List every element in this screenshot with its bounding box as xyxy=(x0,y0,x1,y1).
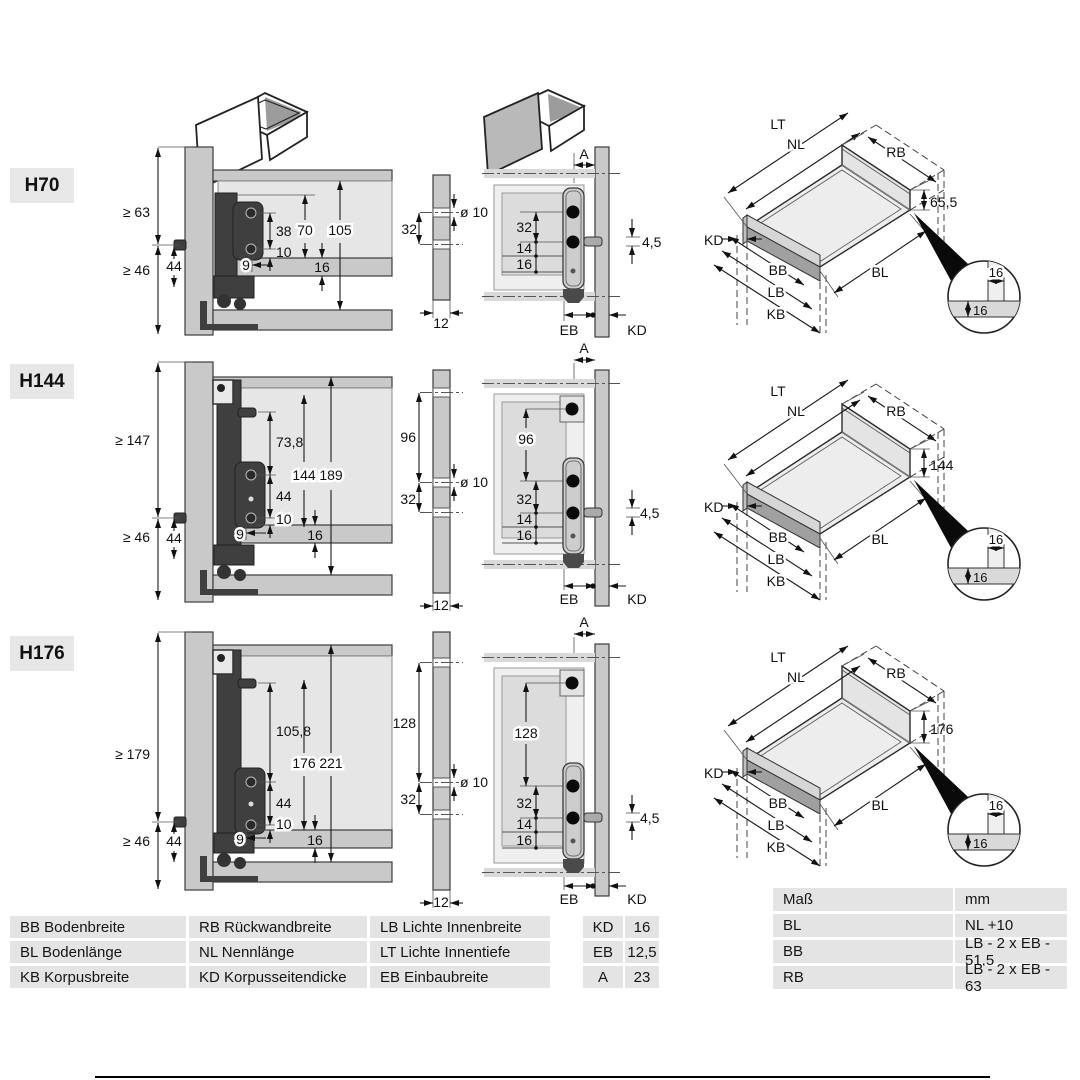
dim-label: 9 xyxy=(236,526,244,542)
dim-label: RB xyxy=(886,403,905,419)
dim-label: 16 xyxy=(989,798,1003,813)
dim-label: 4,5 xyxy=(640,810,660,826)
cabinet-side-panel xyxy=(185,632,213,890)
dim-label: A xyxy=(579,614,589,630)
dim-label: 221 xyxy=(319,755,343,771)
mass-key: BB xyxy=(773,940,953,963)
dim-label: 9 xyxy=(242,257,250,273)
dim-label: EB xyxy=(560,591,579,607)
detail-circle xyxy=(948,794,1020,866)
dim-label: 16 xyxy=(314,259,330,275)
dim-label: 14 xyxy=(516,511,532,527)
dim-label: LB xyxy=(767,817,784,833)
dim-label: BB xyxy=(769,529,788,545)
dim-label: BL xyxy=(871,797,888,813)
mass-table: Maß mm BL NL +10 BB LB - 2 x EB - 51,5 R… xyxy=(773,888,1067,989)
dim-label: 44 xyxy=(276,488,292,504)
cabinet-side-panel xyxy=(595,370,609,606)
dim-label: ≥ 63 xyxy=(123,204,150,220)
dim-label: KD xyxy=(704,232,723,248)
legend-cell: KD Korpusseitendicke xyxy=(189,966,367,988)
dim-label: 73,8 xyxy=(276,434,303,450)
values-key: EB xyxy=(583,941,623,963)
dim-label: BB xyxy=(769,795,788,811)
dim-label: LT xyxy=(770,649,786,665)
drawer-closed-icon xyxy=(484,90,584,175)
dim-label: EB xyxy=(560,322,579,338)
dim-label: NL xyxy=(787,669,805,685)
dim-label: 44 xyxy=(166,530,182,546)
dim-label: 32 xyxy=(516,491,532,507)
dim-label: KD xyxy=(627,322,646,338)
dim-label: 10 xyxy=(276,244,292,260)
dim-label: 176 xyxy=(292,755,316,771)
dim-label: 144 xyxy=(292,467,316,483)
legend-cell: LT Lichte Innentiefe xyxy=(370,941,550,963)
dim-label: 96 xyxy=(518,431,534,447)
dim-label: 16 xyxy=(516,527,532,543)
dim-label: LB xyxy=(767,284,784,300)
dim-label: BL xyxy=(871,264,888,280)
dim-label: 4,5 xyxy=(640,505,660,521)
row-label-h70: H70 xyxy=(10,168,74,203)
dim-label: 10 xyxy=(276,816,292,832)
dim-label: BL xyxy=(871,531,888,547)
cabinet-side-panel xyxy=(595,644,609,896)
detail-circle xyxy=(948,261,1020,333)
detail-circle xyxy=(948,528,1020,600)
dim-label: ≥ 147 xyxy=(115,432,150,448)
dim-label: 16 xyxy=(973,836,987,851)
dim-label: 105,8 xyxy=(276,723,311,739)
dim-label: RB xyxy=(886,144,905,160)
dim-label: 14 xyxy=(516,240,532,256)
dim-label: 32 xyxy=(400,791,416,807)
dim-label: 16 xyxy=(973,570,987,585)
dim-label: 38 xyxy=(276,223,292,239)
values-value: 23 xyxy=(625,966,659,988)
h144-isometric-drawing: LT NL RB 144 KD BB LB KB BL 16 16 xyxy=(700,352,1080,622)
mass-key: RB xyxy=(773,966,953,989)
dim-label: NL xyxy=(787,136,805,152)
dim-label: 9 xyxy=(236,831,244,847)
dim-label: ≥ 46 xyxy=(123,529,150,545)
dim-label: ≥ 46 xyxy=(123,833,150,849)
dim-label: 32 xyxy=(516,795,532,811)
cabinet-side-panel xyxy=(185,147,213,335)
dim-label: RB xyxy=(886,665,905,681)
dim-label: 16 xyxy=(516,832,532,848)
dim-label: KD xyxy=(704,765,723,781)
dim-label: 32 xyxy=(400,491,416,507)
values-key: A xyxy=(583,966,623,988)
h144-cross-section-view: A 96 32 14 16 4,5 EB KD xyxy=(480,338,680,610)
dim-label: LT xyxy=(770,116,786,132)
dim-label: 4,5 xyxy=(642,234,662,250)
mass-header: mm xyxy=(955,888,1067,911)
values-table: KD 16 EB 12,5 A 23 xyxy=(583,916,659,988)
legend-cell: EB Einbaubreite xyxy=(370,966,550,988)
h176-side-view-drawing: ≥ 179 ≥ 46 44 105,8 44 10 9 176 221 16 xyxy=(100,618,400,903)
dim-label: KD xyxy=(627,591,646,607)
row-label-h144: H144 xyxy=(10,364,74,399)
dim-label: 10 xyxy=(276,511,292,527)
dim-label: 12 xyxy=(433,597,449,613)
dim-label: NL xyxy=(787,403,805,419)
dim-label: 16 xyxy=(307,527,323,543)
mass-key: BL xyxy=(773,914,953,937)
dim-label: LB xyxy=(767,551,784,567)
dim-label: KB xyxy=(767,839,786,855)
dim-label: 16 xyxy=(307,832,323,848)
h70-side-view-drawing: ≥ 63 ≥ 46 44 38 10 9 70 105 16 xyxy=(100,85,400,345)
legend-cell: KB Korpusbreite xyxy=(10,966,186,988)
dim-label: 65,5 xyxy=(930,194,957,210)
dim-label: A xyxy=(579,146,589,162)
legend-cell: LB Lichte Innenbreite xyxy=(370,916,550,938)
cabinet-side-panel xyxy=(185,362,213,602)
dim-label: 16 xyxy=(989,265,1003,280)
dim-label: 128 xyxy=(514,725,538,741)
dim-label: 32 xyxy=(401,221,417,237)
values-key: KD xyxy=(583,916,623,938)
dim-label: ≥ 46 xyxy=(123,262,150,278)
dim-label: EB xyxy=(560,891,579,907)
dim-label: 16 xyxy=(516,256,532,272)
dim-label: 16 xyxy=(973,303,987,318)
dim-label: 12 xyxy=(433,894,449,910)
values-value: 16 xyxy=(625,916,659,938)
h144-side-view-drawing: ≥ 147 ≥ 46 44 73,8 44 10 9 144 189 16 xyxy=(100,350,400,610)
mass-header: Maß xyxy=(773,888,953,911)
page-bottom-rule xyxy=(95,1076,990,1078)
legend-cell: RB Rückwandbreite xyxy=(189,916,367,938)
h70-cross-section-view: A 32 14 16 4,5 EB KD xyxy=(480,85,680,345)
dim-label: 44 xyxy=(166,833,182,849)
dim-label: KB xyxy=(767,306,786,322)
legend-table: BB Bodenbreite RB Rückwandbreite LB Lich… xyxy=(10,916,550,988)
dim-label: 16 xyxy=(989,532,1003,547)
dim-label: 14 xyxy=(516,816,532,832)
h176-cross-section-view: A 128 32 14 16 4,5 EB KD xyxy=(480,610,680,910)
dim-label: 12 xyxy=(433,315,449,331)
legend-cell: BL Bodenlänge xyxy=(10,941,186,963)
dim-label: 32 xyxy=(516,219,532,235)
dim-label: BB xyxy=(769,262,788,278)
legend-cell: NL Nennlänge xyxy=(189,941,367,963)
dim-label: 128 xyxy=(393,715,417,731)
values-value: 12,5 xyxy=(625,941,659,963)
dim-label: 70 xyxy=(297,222,313,238)
dim-label: 96 xyxy=(400,429,416,445)
dim-label: 176 xyxy=(930,721,954,737)
dim-label: 44 xyxy=(166,258,182,274)
dim-label: KD xyxy=(627,891,646,907)
h70-isometric-drawing: LT NL RB 65,5 KD BB LB KB BL 16 16 xyxy=(700,85,1080,355)
row-label-h176: H176 xyxy=(10,636,74,671)
dim-label: 44 xyxy=(276,795,292,811)
dim-label: 105 xyxy=(328,222,352,238)
dim-label: KB xyxy=(767,573,786,589)
dim-label: LT xyxy=(770,383,786,399)
dim-label: 144 xyxy=(930,457,954,473)
dim-label: ≥ 179 xyxy=(115,746,150,762)
dim-label: KD xyxy=(704,499,723,515)
legend-cell: BB Bodenbreite xyxy=(10,916,186,938)
dim-label: A xyxy=(579,340,589,356)
mass-formula: LB - 2 x EB - 63 xyxy=(955,966,1067,989)
dim-label: 189 xyxy=(319,467,343,483)
h176-isometric-drawing: LT NL RB 176 KD BB LB KB BL 16 16 xyxy=(700,618,1080,888)
